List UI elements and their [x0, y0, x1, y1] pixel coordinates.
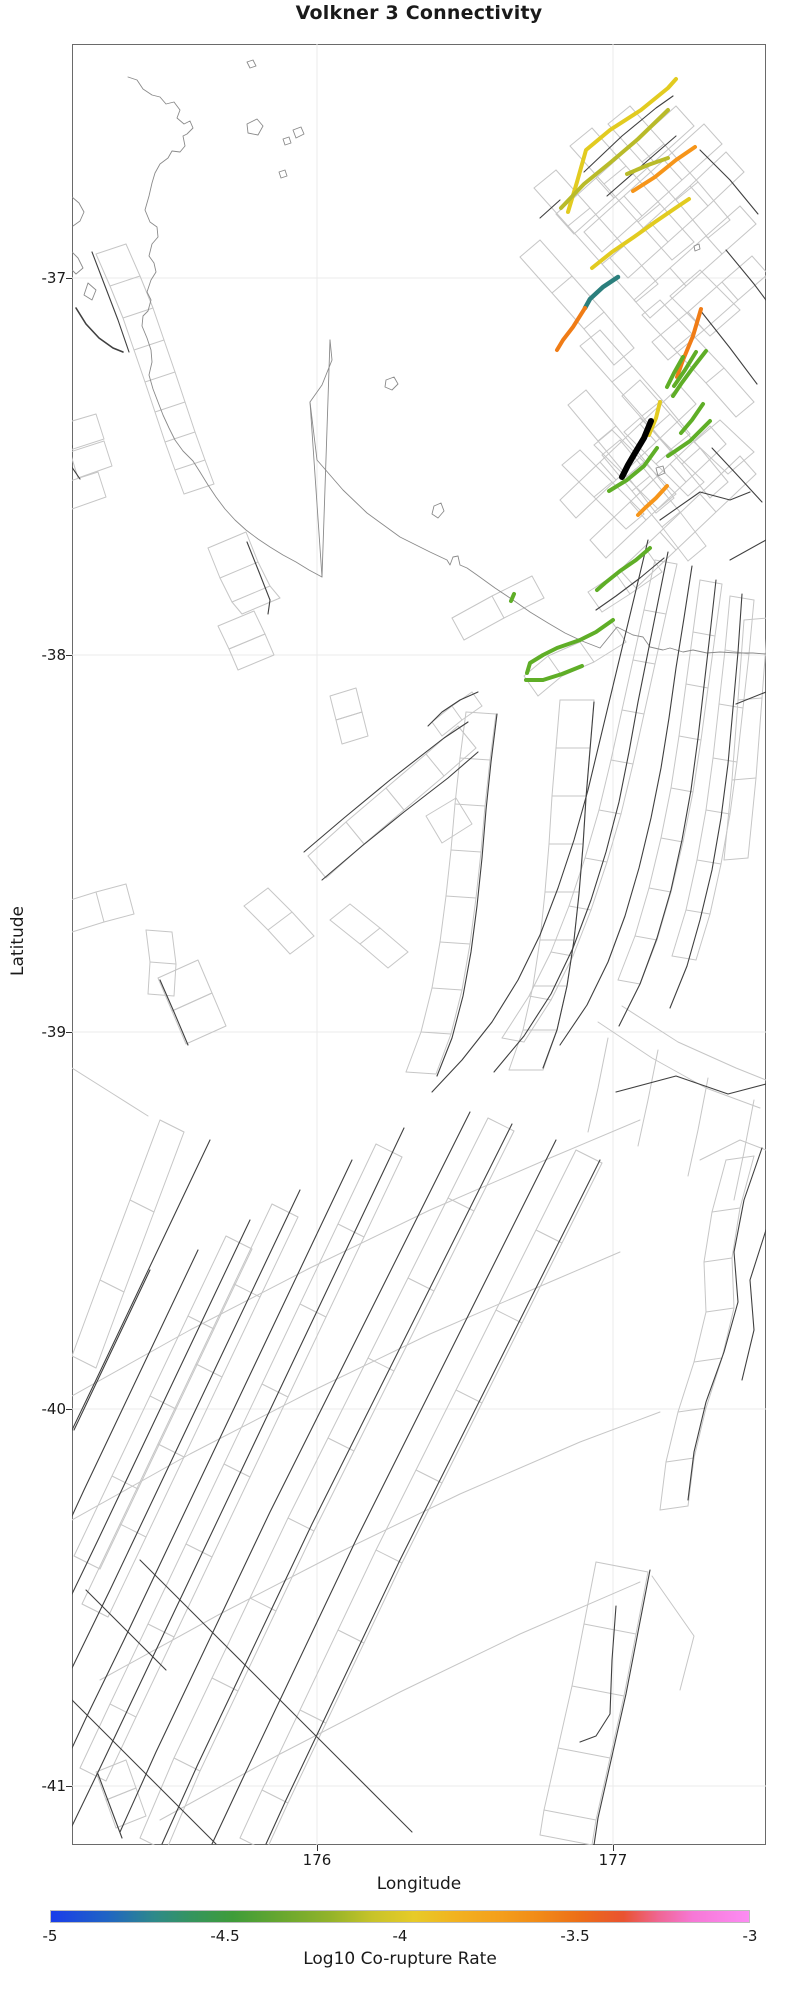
map-canvas	[72, 44, 766, 1845]
fault-ladder-rung	[186, 1544, 212, 1557]
fault-ladder-rung	[688, 482, 704, 496]
y-tick-label: -37	[20, 269, 66, 287]
fault-ladder-rung	[560, 500, 576, 518]
fault-ladder-rung	[576, 1150, 602, 1163]
fault-ladder-rung	[568, 390, 586, 405]
island-outline	[283, 137, 291, 145]
fault-ladder-rail	[326, 748, 476, 878]
fault-ladder-rung	[110, 1704, 136, 1717]
coastline	[72, 252, 83, 274]
fault-ladder-rail	[584, 124, 704, 232]
fault-ladder-rung	[622, 380, 640, 396]
fault-ladder-rung	[82, 1604, 108, 1617]
fault-ladder-rail	[724, 620, 744, 860]
fault-polygon	[158, 960, 212, 1011]
fault-ladder-rail	[308, 726, 458, 856]
fault-polygon	[96, 1760, 136, 1800]
coastline	[128, 77, 330, 577]
fault-ladder-rail	[244, 906, 290, 954]
fault-ladder-rung	[666, 1458, 694, 1462]
fault-ladder-rail	[540, 240, 634, 348]
fault-ladder-rung	[670, 270, 700, 296]
fault-line-dark	[688, 1148, 762, 1500]
fault-line-gray	[160, 1582, 640, 1820]
fault-ladder-rung	[492, 596, 504, 618]
fault-ladder-rung	[693, 632, 715, 636]
y-axis-label: Latitude	[8, 861, 28, 1021]
fault-ladder-rail	[606, 444, 726, 558]
fault-ladder-rung	[700, 494, 716, 512]
fault-polygon	[336, 712, 368, 744]
fault-line-dark	[670, 594, 742, 1008]
fault-ladder-rung	[712, 1208, 740, 1212]
fault-ladder-rung	[624, 418, 640, 432]
fault-ladder-rung	[740, 456, 756, 474]
fault-line-dark	[730, 540, 766, 560]
fault-ladder-rung	[596, 1562, 648, 1572]
fault-ladder-rail	[72, 884, 126, 902]
fault-ladder-rung	[240, 1838, 266, 1845]
fault-ladder-rung	[624, 196, 642, 216]
fault-ladder-rung	[618, 980, 640, 984]
fault-line-dark	[742, 1230, 766, 1380]
y-tick-mark	[66, 278, 72, 279]
fault-ladder-rung	[244, 888, 268, 906]
fault-ladder-rung	[552, 276, 572, 293]
fault-ladder-rung	[672, 956, 696, 960]
fault-ladder-rung	[670, 268, 686, 286]
fault-ladder-rung	[726, 1156, 754, 1160]
fault-ladder-rung	[458, 726, 476, 748]
fault-line-dark	[72, 1140, 210, 1430]
coastline	[72, 197, 84, 226]
fault-ladder-rung	[175, 460, 205, 470]
fault-ladder-rung	[376, 1550, 402, 1563]
fault-ladder-rung	[556, 214, 574, 234]
fault-ladder-rung	[584, 1624, 636, 1634]
fault-ladder-rail	[592, 1572, 648, 1845]
fault-ladder-rung	[184, 484, 214, 494]
coastline	[310, 402, 322, 577]
fault-line-gray	[598, 1022, 760, 1108]
fault-ladder-rung	[126, 884, 134, 914]
fault-ladder-rung	[633, 660, 655, 664]
fault-ladder-rail	[700, 270, 740, 310]
fault-ladder-rung	[656, 498, 674, 513]
fault-ladder-rung	[72, 1356, 96, 1368]
fault-ladder-rail	[82, 1204, 272, 1604]
fault-ladder-rung	[520, 240, 540, 257]
fault-polygon	[172, 993, 226, 1044]
fault-ladder-rung	[220, 562, 258, 578]
fault-ladder-rung	[710, 426, 726, 444]
fault-ladder-rung	[611, 760, 633, 764]
fault-ladder-rung	[694, 1358, 722, 1362]
fault-ladder-rung	[710, 310, 740, 336]
fault-ladder-rung	[728, 452, 754, 474]
fault-ladder-rung	[736, 402, 754, 417]
fault-ladder-rung	[262, 1384, 288, 1397]
colorbar-tick-label: -5	[20, 1927, 80, 1945]
fault-ladder-rung	[690, 186, 708, 206]
fault-ladder-rung	[534, 170, 556, 188]
fault-line-dark	[322, 752, 478, 880]
fault-ladder-rung	[290, 936, 314, 954]
fault-line-gray	[588, 1038, 608, 1132]
colorbar	[50, 1910, 750, 1923]
fault-ladder-rung	[688, 546, 706, 561]
fault-ladder-rung	[588, 592, 602, 612]
fault-ladder-rung	[368, 1358, 394, 1371]
fault-ladder-rung	[632, 476, 650, 491]
fault-ladder-rail	[350, 904, 408, 952]
fault-ladder-rung	[165, 432, 195, 442]
fault-ladder-rung	[262, 1790, 288, 1803]
fault-ladder-rail	[208, 548, 242, 614]
fault-line-dark	[72, 1160, 352, 1748]
fault-ladder-rail	[166, 1131, 514, 1845]
fault-ladder-rung	[456, 1390, 482, 1403]
fault-ladder-rung	[724, 858, 748, 860]
colorbar-tick-label: -4	[370, 1927, 430, 1945]
fault-ladder-rung	[196, 1364, 222, 1377]
fault-ladder-rail	[146, 930, 150, 994]
fault-ladder-rung	[496, 1310, 522, 1323]
fault-ladder-rail	[72, 1120, 160, 1356]
island-outline	[432, 503, 444, 518]
fault-ladder-rung	[488, 1118, 514, 1131]
fault-ladder-rung	[448, 1198, 474, 1211]
island-outline	[247, 60, 256, 68]
fault-ladder-rung	[540, 1835, 592, 1845]
fault-ladder-rung	[158, 1444, 184, 1457]
fault-ladder-rung	[338, 1224, 364, 1237]
fault-ladder-rung	[300, 1710, 326, 1723]
fault-ladder-rung	[406, 1072, 436, 1074]
corupture-segment-green-tick	[511, 594, 514, 601]
island-outline	[279, 170, 287, 178]
coastline	[84, 283, 96, 300]
fault-line-gray	[100, 1412, 660, 1680]
fault-line-dark	[700, 150, 758, 214]
fault-line-dark	[560, 566, 692, 1045]
fault-ladder-rail	[240, 1150, 576, 1838]
fault-ladder-rung	[661, 838, 683, 842]
fault-ladder-rung	[268, 912, 292, 930]
fault-line-dark	[72, 1220, 250, 1594]
x-tick-label: 176	[287, 1851, 347, 1869]
fault-ladder-rung	[672, 242, 694, 260]
fault-line-dark	[72, 1250, 198, 1516]
fault-ladder-rung	[594, 430, 612, 445]
fault-ladder-rung	[706, 236, 722, 254]
fault-ladder-rung	[130, 1200, 154, 1212]
fault-ladder-rung	[706, 368, 724, 383]
fault-line-dark	[428, 692, 478, 726]
island-outline	[293, 127, 304, 138]
fault-ladder-rung	[242, 598, 280, 614]
fault-ladder-rung	[726, 152, 744, 172]
fault-polygon	[72, 414, 104, 450]
fault-ladder-rail	[96, 1132, 184, 1368]
fault-ladder-rung	[596, 178, 614, 198]
y-tick-mark	[66, 1786, 72, 1787]
fault-ladder-rung	[100, 1280, 124, 1292]
x-axis-label: Longitude	[72, 1874, 766, 1894]
fault-line-dark	[494, 552, 668, 1072]
fault-line-dark	[212, 1140, 556, 1844]
fault-line-dark	[594, 1570, 650, 1845]
fault-line-gray	[622, 1006, 766, 1080]
fault-ladder-rung	[584, 312, 604, 329]
fault-ladder-rung	[432, 988, 462, 990]
fault-ladder-rung	[346, 822, 364, 844]
fault-ladder-rung	[376, 1144, 402, 1157]
fault-line-gray	[638, 1050, 658, 1146]
fault-line-dark	[74, 1270, 150, 1430]
fault-ladder-rung	[644, 610, 666, 614]
fault-ladder-rung	[686, 910, 710, 914]
fault-ladder-rung	[572, 1686, 624, 1696]
fault-line-dark	[86, 1590, 166, 1670]
island-outline	[694, 244, 700, 251]
fault-ladder-rung	[148, 994, 174, 996]
fault-ladder-rung	[330, 904, 350, 920]
fault-ladder-rung	[602, 440, 620, 455]
fault-ladder-rung	[544, 1810, 596, 1820]
fault-ladder-rung	[148, 1624, 174, 1637]
fault-line-gray	[652, 1576, 694, 1690]
fault-ladder-rail	[268, 888, 314, 936]
island-outline	[385, 377, 398, 390]
fault-ladder-rail	[520, 257, 614, 365]
fault-ladder-rung	[416, 1470, 442, 1483]
fault-ladder-rung	[660, 1506, 688, 1510]
x-tick-mark	[317, 1845, 318, 1851]
fault-line-gray	[72, 1068, 148, 1116]
fault-ladder-rung	[620, 570, 636, 588]
fault-ladder-rung	[426, 754, 444, 776]
fault-line-dark	[616, 1076, 766, 1094]
island-outline	[247, 119, 263, 135]
fault-ladder-rail	[634, 206, 740, 300]
x-tick-label: 177	[583, 1851, 643, 1869]
fault-ladder-rung	[652, 342, 668, 360]
fault-ladder-rail	[540, 1562, 596, 1835]
fault-ladder-rung	[704, 1258, 732, 1262]
colorbar-label: Log10 Co-rupture Rate	[50, 1949, 750, 1969]
fault-ladder-rail	[436, 714, 496, 1074]
fault-ladder-rung	[234, 1284, 260, 1297]
y-tick-label: -40	[20, 1400, 66, 1418]
fault-ladder-rung	[386, 788, 404, 810]
fault-ladder-rung	[635, 936, 657, 940]
fault-ladder-rail	[672, 596, 730, 956]
fault-ladder-rung	[232, 586, 270, 602]
corupture-segment-yellow-long-upper	[568, 79, 676, 212]
fault-ladder-rung	[584, 232, 602, 252]
fault-ladder-rail	[140, 1118, 488, 1838]
fault-polygon	[330, 688, 362, 720]
figure-title: Volkner 3 Connectivity	[72, 2, 766, 24]
y-tick-mark	[66, 1409, 72, 1410]
fault-ladder-rung	[96, 244, 126, 254]
fault-ladder-rung	[360, 928, 380, 944]
fault-ladder-rung	[580, 330, 600, 346]
fault-line-gray	[700, 1140, 766, 1160]
fault-ladder-rung	[704, 124, 722, 144]
fault-ladder-rung	[662, 512, 680, 527]
y-tick-mark	[66, 655, 72, 656]
y-tick-mark	[66, 1032, 72, 1033]
fault-ladder-rail	[688, 1156, 754, 1506]
fault-ladder-rung	[732, 778, 756, 780]
fault-ladder-rung	[744, 618, 766, 620]
fault-ladder-rung	[452, 618, 464, 640]
fault-ladder-rung	[626, 514, 644, 529]
fault-ladder-rung	[752, 256, 766, 274]
fault-ladder-rung	[636, 284, 658, 302]
corupture-segment-green-parallel-lower	[526, 666, 582, 680]
fault-line-gray	[688, 1078, 708, 1176]
fault-ladder-rung	[451, 850, 481, 852]
fault-ladder-rung	[719, 704, 743, 708]
fault-ladder-rail	[543, 700, 594, 1070]
fault-ladder-rung	[558, 1748, 610, 1758]
fault-polygon	[229, 634, 274, 670]
fault-ladder-rail	[590, 426, 710, 540]
x-tick-mark	[613, 1845, 614, 1851]
figure-page: { "title": "Volkner 3 Connectivity", "ax…	[0, 0, 800, 1989]
fault-ladder-rung	[671, 788, 693, 792]
fault-ladder-rail	[636, 474, 756, 588]
fault-ladder-rung	[160, 1120, 184, 1132]
fault-ladder-rail	[720, 420, 754, 452]
fault-ladder-rung	[568, 208, 590, 226]
fault-ladder-rung	[590, 540, 606, 558]
fault-ladder-rung	[604, 166, 626, 184]
fault-ladder-rung	[120, 1524, 146, 1537]
fault-ladder-rung	[96, 892, 104, 922]
fault-ladder-rung	[328, 1438, 354, 1451]
fault-ladder-rung	[562, 450, 580, 465]
colorbar-tick-label: -4.5	[195, 1927, 255, 1945]
fault-ladder-rung	[622, 710, 644, 714]
fault-ladder-rung	[680, 386, 696, 404]
fault-ladder-rail	[106, 1157, 402, 1781]
fault-ladder-rung	[272, 1204, 298, 1217]
fault-ladder-rung	[642, 300, 660, 315]
fault-ladder-rung	[452, 706, 462, 720]
fault-polygon	[106, 1788, 146, 1828]
fault-ladder-rung	[388, 952, 408, 968]
fault-line-dark	[72, 1128, 404, 1826]
fault-ladder-rung	[208, 532, 246, 548]
y-tick-label: -39	[20, 1023, 66, 1041]
fault-ladder-rung	[338, 1630, 364, 1643]
fault-ladder-rung	[708, 220, 730, 238]
colorbar-tick-label: -3	[720, 1927, 780, 1945]
fault-ladder-rung	[570, 128, 592, 146]
fault-ladder-rung	[440, 942, 470, 944]
fault-ladder-rail	[670, 296, 710, 336]
fault-ladder-rung	[706, 810, 730, 814]
fault-ladder-rung	[150, 962, 176, 964]
fault-polygon	[72, 441, 112, 478]
fault-line-dark	[543, 702, 594, 1068]
fault-ladder-rung	[432, 722, 442, 736]
fault-ladder-rung	[700, 580, 722, 584]
colorbar-tick-label: -3.5	[545, 1927, 605, 1945]
fault-ladder-rung	[446, 896, 476, 898]
fault-ladder-rung	[676, 106, 694, 126]
fault-ladder-rung	[706, 1308, 734, 1312]
coastline	[310, 340, 766, 654]
fault-line-dark	[304, 722, 468, 852]
fault-polygon	[72, 472, 106, 509]
fault-ladder-rung	[300, 1304, 326, 1317]
fault-ladder-rung	[532, 576, 544, 598]
fault-ladder-rung	[224, 1464, 250, 1477]
fault-ladder-rung	[697, 860, 721, 864]
fault-ladder-rail	[80, 1144, 376, 1768]
fault-ladder-rung	[599, 810, 621, 814]
fault-line-dark	[72, 1190, 300, 1668]
fault-ladder-rung	[408, 1278, 434, 1291]
fault-line-dark	[98, 1774, 122, 1838]
corupture-segment-green-whakatane-upper	[597, 548, 650, 590]
fault-ladder-rung	[649, 888, 671, 892]
fault-ladder-rung	[536, 1230, 562, 1243]
fault-ladder-rung	[722, 282, 738, 300]
y-tick-label: -38	[20, 646, 66, 664]
fault-ladder-rung	[146, 930, 172, 932]
y-tick-label: -41	[20, 1777, 66, 1795]
fault-line-gray	[734, 1100, 754, 1200]
fault-ladder-rung	[612, 366, 632, 382]
